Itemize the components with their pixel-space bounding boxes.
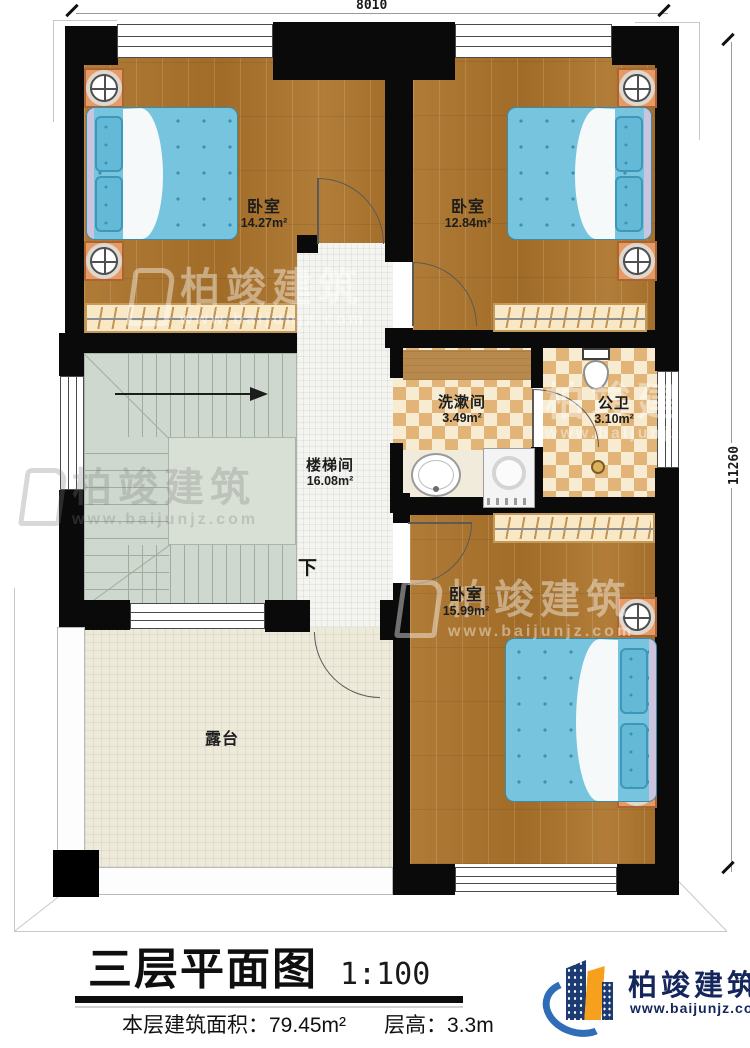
logo-building-icon bbox=[602, 982, 613, 1020]
washer-controls bbox=[487, 498, 531, 505]
bedroom2-door-leaf bbox=[412, 262, 414, 326]
lamp-icon bbox=[623, 603, 651, 631]
wall bbox=[655, 468, 679, 895]
lamp-icon bbox=[623, 74, 651, 102]
wardrobe bbox=[493, 513, 655, 543]
right-dimension-label: 11260 bbox=[727, 443, 742, 488]
sink-icon bbox=[411, 453, 461, 497]
pillow bbox=[95, 176, 123, 232]
bed-sheet bbox=[575, 107, 615, 240]
bedroom1-label: 卧室 14.27m² bbox=[214, 199, 314, 230]
bedroom3-door-leaf bbox=[408, 522, 472, 524]
brand-name: 柏竣建筑 bbox=[628, 962, 750, 1004]
washing-machine-icon bbox=[483, 448, 535, 508]
bed-headboard bbox=[644, 108, 651, 239]
wall bbox=[265, 600, 310, 632]
plan-title-row: 三层平面图 1:100 bbox=[88, 933, 430, 997]
nightstand bbox=[617, 597, 657, 637]
bedroom2-label: 卧室 12.84m² bbox=[418, 199, 518, 230]
floor-info-row: 本层建筑面积：79.45m² 层高：3.3m bbox=[122, 1009, 494, 1039]
pillow bbox=[95, 116, 123, 172]
stair-arrow-icon bbox=[115, 393, 251, 395]
title-underline-thin bbox=[75, 1006, 463, 1008]
wall bbox=[59, 490, 84, 602]
toilet-door-leaf bbox=[532, 389, 534, 447]
eave-outline bbox=[635, 22, 699, 23]
wall bbox=[655, 26, 679, 371]
wall bbox=[531, 348, 543, 388]
wall bbox=[297, 235, 318, 253]
scale-label: 1:100 bbox=[340, 957, 430, 992]
toilet-label: 公卫 3.10m² bbox=[564, 396, 664, 426]
top-dimension-line bbox=[76, 13, 668, 14]
washroom-label: 洗漱间 3.49m² bbox=[412, 395, 512, 425]
brand-logo: 柏竣建筑 www.baijunjz.com bbox=[540, 948, 750, 1040]
bed bbox=[507, 107, 652, 240]
nightstand bbox=[84, 68, 124, 108]
wall bbox=[380, 600, 410, 640]
bed-headboard bbox=[87, 108, 94, 239]
wall bbox=[393, 330, 677, 348]
window bbox=[455, 24, 612, 58]
eave-outline bbox=[14, 897, 59, 932]
bed-sheet bbox=[123, 107, 163, 240]
eave-outline bbox=[14, 931, 727, 932]
window bbox=[60, 376, 84, 490]
wall bbox=[390, 340, 403, 378]
eave-outline bbox=[676, 879, 727, 931]
lamp-icon bbox=[90, 247, 118, 275]
top-dimension-label: 8010 bbox=[352, 0, 391, 13]
brand-url: www.baijunjz.com bbox=[630, 1000, 750, 1016]
page-title: 三层平面图 bbox=[88, 933, 318, 997]
stair-winders bbox=[85, 437, 169, 607]
bed-headboard bbox=[649, 639, 656, 801]
window bbox=[455, 867, 617, 892]
lamp-icon bbox=[90, 74, 118, 102]
terrace-column bbox=[53, 850, 99, 897]
washroom-counter bbox=[403, 350, 531, 380]
floor-height-label: 层高：3.3m bbox=[384, 1009, 494, 1039]
wardrobe bbox=[493, 303, 647, 332]
nightstand bbox=[84, 241, 124, 281]
washer-drum bbox=[492, 456, 526, 490]
wall bbox=[617, 864, 677, 895]
window bbox=[117, 24, 273, 58]
logo-building-icon bbox=[566, 960, 586, 1020]
floor-drain-icon bbox=[591, 460, 605, 474]
bedroom3-label: 卧室 15.99m² bbox=[416, 587, 516, 618]
nightstand bbox=[617, 241, 657, 281]
stairwell-label: 楼梯间 16.08m² bbox=[280, 458, 380, 488]
terrace-label: 露台 bbox=[172, 731, 272, 749]
eave-outline bbox=[699, 22, 700, 140]
stair-arrow-icon bbox=[250, 387, 268, 401]
eave-outline bbox=[53, 20, 54, 122]
eave-outline bbox=[53, 20, 117, 21]
wall bbox=[59, 333, 297, 353]
floor-plan-page: 8010 11260 bbox=[0, 0, 750, 1048]
stair-landing bbox=[168, 437, 296, 545]
wall bbox=[273, 22, 455, 80]
wall bbox=[59, 353, 84, 376]
dimension-tick-icon bbox=[65, 4, 78, 17]
bed bbox=[505, 638, 657, 802]
pillow bbox=[620, 648, 648, 714]
wall bbox=[59, 600, 130, 630]
nightstand bbox=[617, 68, 657, 108]
bed-sheet bbox=[576, 638, 618, 802]
dimension-tick-icon bbox=[721, 861, 734, 874]
dimension-tick-icon bbox=[657, 4, 670, 17]
pillow bbox=[615, 116, 643, 172]
wardrobe bbox=[85, 303, 297, 333]
title-underline bbox=[75, 996, 463, 1003]
pillow bbox=[620, 723, 648, 789]
stair-direction-label: 下 bbox=[298, 553, 317, 580]
pillow bbox=[615, 176, 643, 232]
terrace-parapet bbox=[57, 867, 393, 895]
wall bbox=[385, 80, 413, 262]
window bbox=[130, 603, 265, 629]
wall bbox=[393, 493, 410, 523]
toilet-icon bbox=[582, 348, 610, 360]
dimension-tick-icon bbox=[721, 33, 734, 46]
lamp-icon bbox=[623, 247, 651, 275]
wall bbox=[65, 26, 84, 333]
bedroom1-door-leaf bbox=[317, 178, 319, 244]
eave-outline bbox=[14, 588, 15, 932]
wall bbox=[393, 864, 455, 895]
floor-area-label: 本层建筑面积：79.45m² bbox=[122, 1009, 346, 1039]
